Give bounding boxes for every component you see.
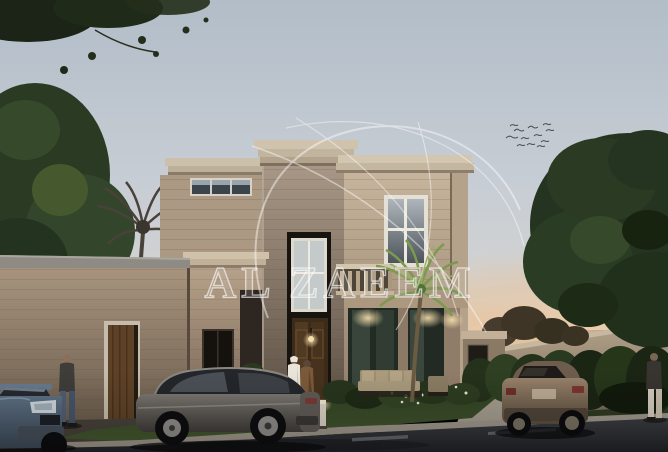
watermark-text: AL ZAEEM — [204, 258, 475, 307]
villa-exterior-render: AL ZAEEM — [0, 0, 668, 452]
render-canvas: AL ZAEEM — [0, 0, 668, 452]
right-wing-window — [384, 195, 428, 267]
bottom-vignette — [0, 370, 668, 452]
villa-left-upper-block — [160, 158, 267, 268]
upper-window-band — [190, 178, 252, 196]
downlight-glow — [352, 308, 384, 328]
